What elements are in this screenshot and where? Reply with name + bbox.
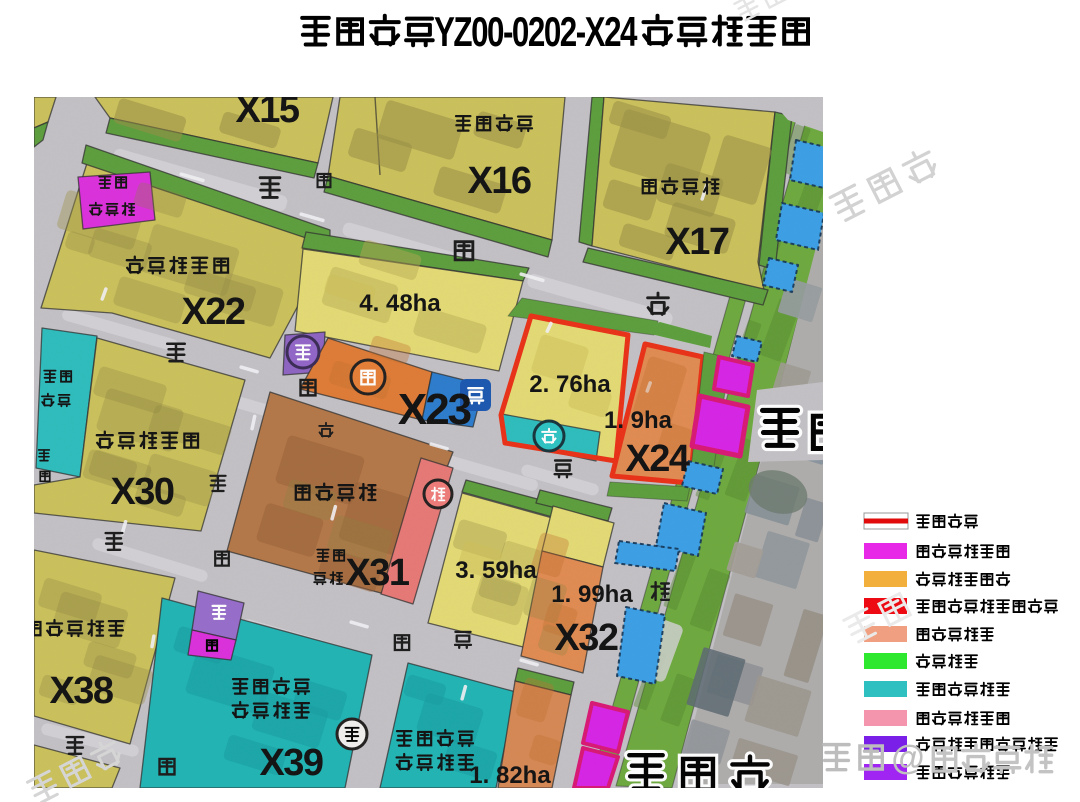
svg-text:@: @ [891, 739, 924, 777]
svg-text:YZ00-0202-X24: YZ00-0202-X24 [434, 8, 638, 55]
